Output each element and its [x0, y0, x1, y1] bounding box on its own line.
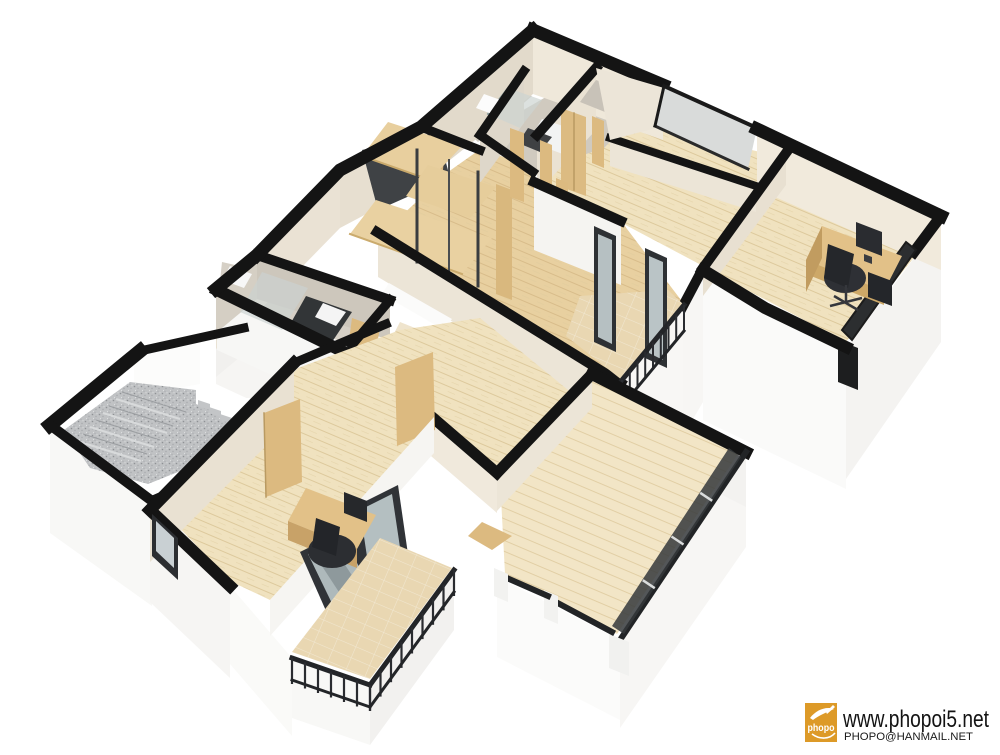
svg-text:www.phopoi5.net: www.phopoi5.net	[842, 706, 989, 733]
svg-text:PHOPO@HANMAIL.NET: PHOPO@HANMAIL.NET	[844, 731, 973, 743]
svg-text:phopo: phopo	[808, 722, 835, 734]
